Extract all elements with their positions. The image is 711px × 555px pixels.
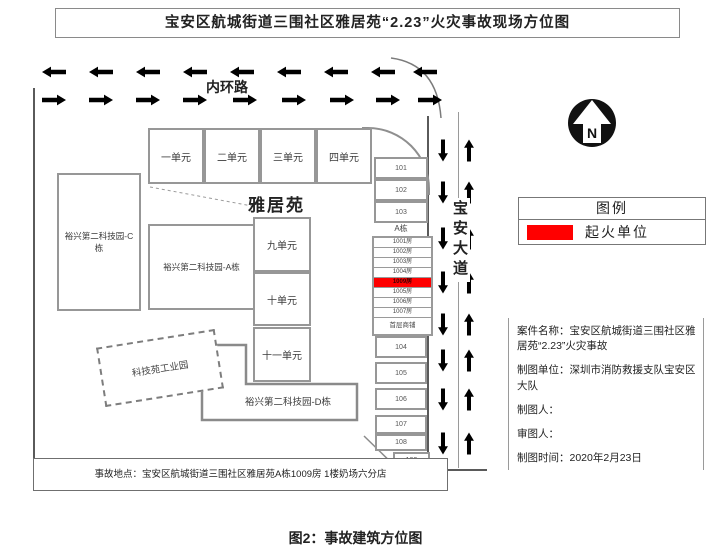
up-arrow-icon — [464, 140, 475, 162]
industrial-park: 科技苑工业园 — [96, 329, 224, 407]
legend-title: 图例 — [519, 198, 705, 220]
right-arrow-icon — [330, 94, 354, 106]
road-label-neihuan: 内环路 — [195, 77, 259, 97]
case-name: 案件名称：宝安区航城街道三围社区雅居苑“2.23”火灾事故 — [517, 324, 697, 354]
lane-divider — [458, 112, 459, 468]
shop-104: 104 — [375, 336, 427, 358]
shop-row: 1005房 — [374, 288, 431, 298]
up-arrow-icon — [464, 433, 475, 455]
drawing-unit: 制图单位：深圳市消防救援支队宝安区大队 — [517, 363, 697, 393]
shop-106: 106 — [375, 388, 427, 410]
building-unit-3: 三单元 — [260, 128, 316, 184]
right-arrow-icon — [42, 94, 66, 106]
shop-row-stack: 1001房 1002房 1003房 1004房 1009房 1005房 1006… — [372, 236, 433, 336]
complex-label: 雅居苑 — [248, 191, 318, 216]
up-arrow-icon — [464, 314, 475, 336]
shop-105: 105 — [375, 362, 427, 384]
building-unit-9: 九单元 — [253, 217, 311, 272]
left-arrow-icon — [42, 66, 66, 78]
fire-unit-label: 起火单位 — [585, 222, 649, 242]
right-arrow-icon — [89, 94, 113, 106]
left-arrow-icon — [371, 66, 395, 78]
figure-caption: 图2：事故建筑方位图 — [0, 528, 711, 548]
north-compass-icon: N — [566, 97, 618, 149]
left-arrow-icon — [89, 66, 113, 78]
map-left-border — [33, 88, 35, 458]
up-arrow-icon — [464, 350, 475, 372]
down-arrow-icon — [438, 228, 449, 250]
shop-row: 1003房 — [374, 258, 431, 268]
up-arrow-icon — [464, 389, 475, 411]
compass-n-label: N — [587, 125, 597, 141]
fire-unit-swatch — [527, 225, 573, 240]
shop-row-ground: 首层商铺 — [374, 318, 431, 334]
left-arrow-icon — [413, 66, 437, 78]
right-arrow-icon — [418, 94, 442, 106]
drafter: 制图人： — [517, 403, 697, 418]
right-arrow-icon — [136, 94, 160, 106]
left-arrow-icon — [324, 66, 348, 78]
shop-108: 108 — [375, 434, 427, 451]
left-arrow-icon — [136, 66, 160, 78]
left-arrow-icon — [277, 66, 301, 78]
page-title: 宝安区航城街道三围社区雅居苑“2.23”火灾事故现场方位图 — [55, 8, 680, 38]
shop-row: 1004房 — [374, 268, 431, 278]
shop-row: 1002房 — [374, 248, 431, 258]
block-a-label: A栋 — [374, 223, 428, 234]
building-unit-11: 十一单元 — [253, 327, 311, 382]
right-arrow-icon — [376, 94, 400, 106]
dashed-leader-line — [150, 187, 252, 206]
shop-row: 1006房 — [374, 298, 431, 308]
building-unit-1: 一单元 — [148, 128, 204, 184]
legend-box: 图例 起火单位 — [518, 197, 706, 245]
building-a: 裕兴第二科技园-A栋 — [148, 224, 255, 310]
down-arrow-icon — [438, 350, 449, 372]
shop-row: 1001房 — [374, 238, 431, 248]
shop-102: 102 — [374, 179, 428, 201]
down-arrow-icon — [438, 433, 449, 455]
right-arrow-icon — [282, 94, 306, 106]
site-plan-page: 宝安区航城街道三围社区雅居苑“2.23”火灾事故现场方位图 内环路 宝 — [0, 0, 711, 555]
shop-107: 107 — [375, 415, 427, 434]
down-arrow-icon — [438, 140, 449, 162]
building-d-label: 裕兴第二科技园-D栋 — [228, 394, 348, 408]
legend-row: 起火单位 — [519, 220, 705, 244]
building-unit-10: 十单元 — [253, 272, 311, 326]
shop-103: 103 — [374, 201, 428, 223]
building-unit-2: 二单元 — [204, 128, 260, 184]
road-label-baoan: 宝安大道 — [449, 198, 470, 282]
building-unit-4: 四单元 — [316, 128, 372, 184]
shop-101: 101 — [374, 157, 428, 179]
down-arrow-icon — [438, 389, 449, 411]
building-c: 裕兴第二科技园-C栋 — [57, 173, 141, 311]
drawing-date: 制图时间：2020年2月23日 — [517, 451, 697, 466]
down-arrow-icon — [438, 182, 449, 204]
shop-row: 1007房 — [374, 308, 431, 318]
down-arrow-icon — [438, 314, 449, 336]
down-arrow-icon — [438, 272, 449, 294]
info-panel: 案件名称：宝安区航城街道三围社区雅居苑“2.23”火灾事故 制图单位：深圳市消防… — [508, 318, 704, 470]
incident-location-note: 事故地点：宝安区航城街道三围社区雅居苑A栋1009房 1楼奶场六分店 — [33, 458, 448, 491]
fire-unit-row: 1009房 — [374, 278, 431, 288]
industrial-park-label: 科技苑工业园 — [131, 357, 190, 380]
reviewer: 审图人： — [517, 427, 697, 442]
